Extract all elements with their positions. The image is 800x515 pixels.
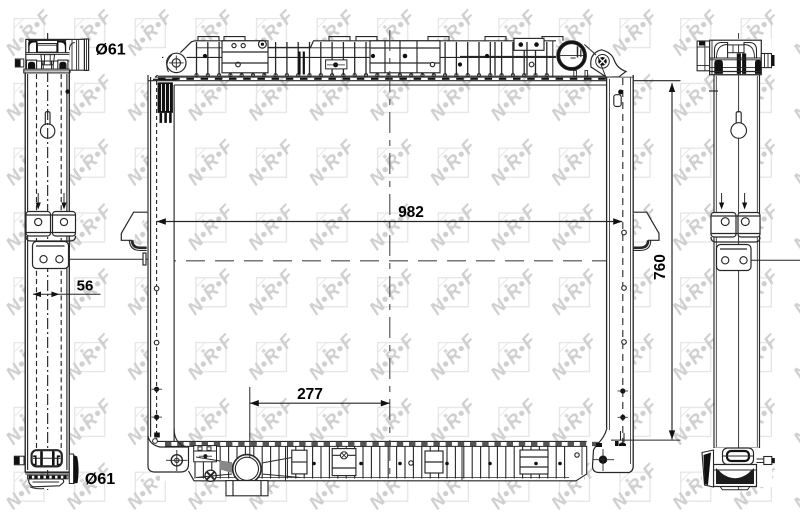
svg-text:982: 982	[398, 204, 424, 221]
svg-text:Ø61: Ø61	[85, 471, 115, 488]
svg-text:Ø61: Ø61	[95, 42, 125, 59]
svg-text:56: 56	[77, 278, 94, 295]
svg-text:277: 277	[297, 386, 323, 403]
svg-text:760: 760	[652, 254, 669, 280]
